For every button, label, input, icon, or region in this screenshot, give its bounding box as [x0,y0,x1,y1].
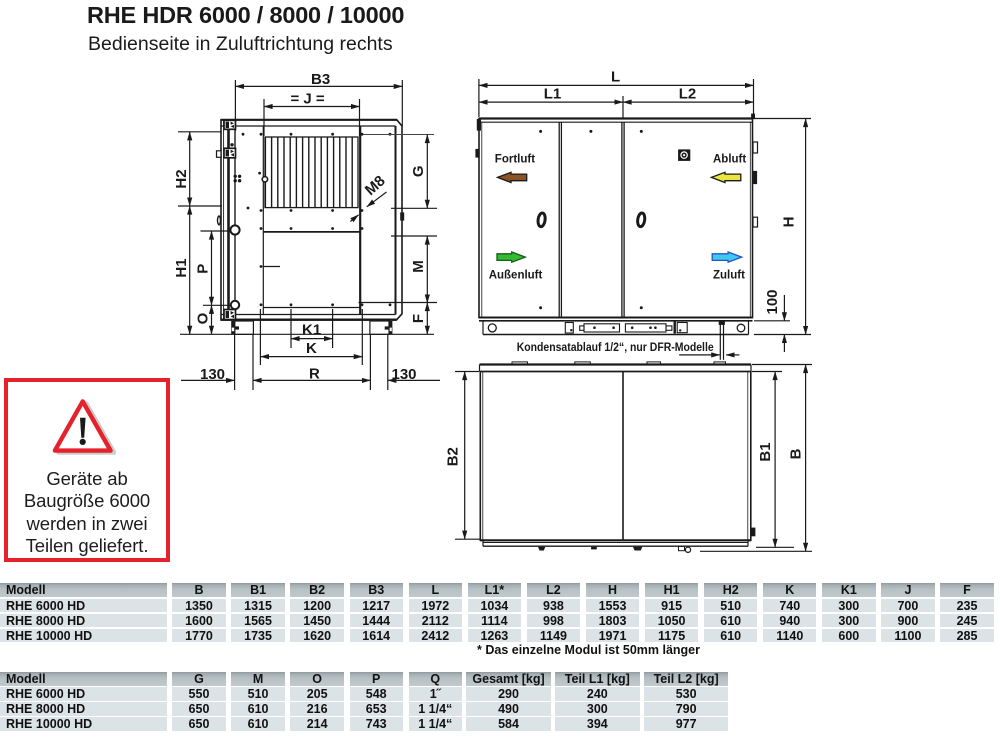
svg-text:Abluft: Abluft [713,153,746,165]
svg-text:O: O [195,312,212,324]
svg-text:L: L [611,69,620,86]
svg-text:K1: K1 [302,322,321,339]
svg-text:Zuluft: Zuluft [713,269,745,281]
svg-text:Kondensatablauf 1/2“, nur DFR-: Kondensatablauf 1/2“, nur DFR-Modelle [517,340,714,354]
svg-text:B2: B2 [445,447,462,466]
svg-text:B3: B3 [311,71,330,88]
svg-text:L1: L1 [544,86,562,103]
svg-text:B1: B1 [757,442,774,461]
svg-text:= J =: = J = [291,91,325,108]
svg-text:130: 130 [392,366,417,383]
svg-text:B: B [788,448,805,459]
svg-text:130: 130 [200,366,225,383]
svg-text:K: K [306,340,317,357]
svg-text:F: F [410,314,427,323]
svg-text:H1: H1 [173,258,190,277]
svg-text:M: M [410,260,427,273]
svg-text:R: R [309,366,320,383]
svg-text:H: H [781,217,798,228]
svg-text:M8: M8 [362,172,389,199]
svg-text:H2: H2 [173,169,190,188]
svg-text:L2: L2 [679,86,697,103]
svg-text:G: G [410,165,427,177]
svg-text:Fortluft: Fortluft [495,153,535,165]
svg-text:Außenluft: Außenluft [489,269,543,281]
svg-text:P: P [195,264,212,274]
svg-text:100: 100 [764,289,781,314]
